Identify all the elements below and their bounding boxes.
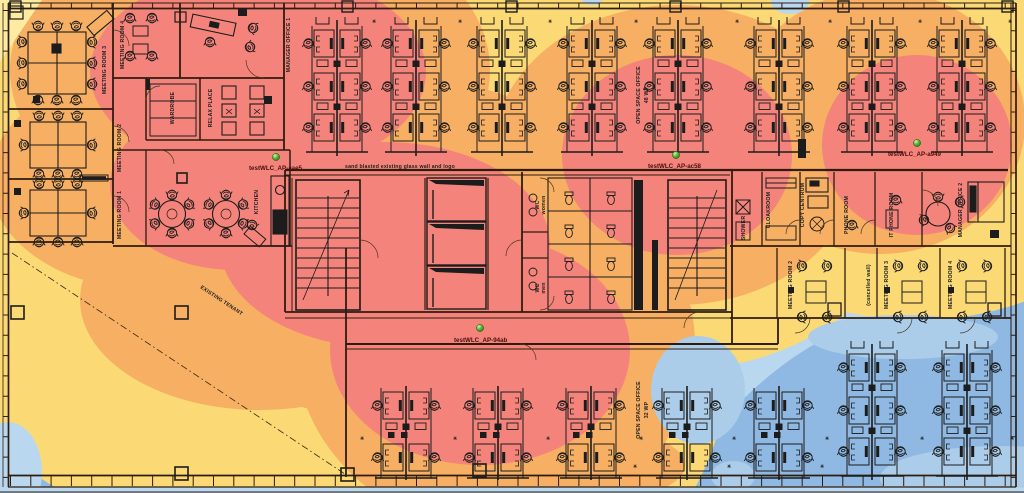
svg-text:men: men	[541, 282, 547, 293]
svg-text:✳: ✳	[820, 464, 825, 470]
svg-text:✳: ✳	[1010, 436, 1015, 442]
svg-text:✳: ✳	[372, 19, 377, 25]
svg-text:MANAGER OFFICE 1: MANAGER OFFICE 1	[286, 18, 292, 73]
svg-text:CLOAKROOM: CLOAKROOM	[766, 192, 772, 228]
svg-text:✳: ✳	[1008, 19, 1013, 25]
svg-text:RELAX PLACE: RELAX PLACE	[208, 88, 214, 127]
svg-text:✳: ✳	[920, 436, 925, 442]
svg-text:✳: ✳	[633, 464, 638, 470]
svg-text:MEETING ROOM 1: MEETING ROOM 1	[117, 191, 123, 239]
svg-text:testWLC_AP-a949: testWLC_AP-a949	[888, 151, 942, 158]
svg-text:✳: ✳	[360, 436, 365, 442]
svg-text:testWLC_AP-94ab: testWLC_AP-94ab	[454, 337, 508, 344]
svg-text:WARDROBE: WARDROBE	[170, 91, 176, 124]
svg-text:SHOWER: SHOWER	[741, 216, 747, 241]
svg-text:COPY CENTRUM: COPY CENTRUM	[800, 183, 806, 227]
svg-text:✳: ✳	[546, 436, 551, 442]
svg-text:MEETING ROOM 3: MEETING ROOM 3	[102, 46, 108, 94]
svg-text:✳: ✳	[735, 19, 740, 25]
svg-text:✳: ✳	[825, 436, 830, 442]
svg-text:✳: ✳	[732, 436, 737, 442]
svg-text:MEETING ROOM 4: MEETING ROOM 4	[948, 261, 954, 309]
svg-text:sand blasted existing glass wa: sand blasted existing glass wall and log…	[345, 164, 455, 170]
svg-text:MEETING ROOM 2: MEETING ROOM 2	[788, 261, 794, 309]
svg-text:48 WP: 48 WP	[644, 86, 650, 103]
svg-text:✳: ✳	[458, 19, 463, 25]
svg-text:32 WP: 32 WP	[644, 401, 650, 418]
svg-text:✳: ✳	[828, 19, 833, 25]
svg-text:✳: ✳	[727, 464, 732, 470]
svg-text:PHONE ROOM: PHONE ROOM	[844, 196, 850, 234]
svg-text:OPEN SPACE OFFICE: OPEN SPACE OFFICE	[636, 381, 642, 439]
svg-text:(cancelled wall): (cancelled wall)	[866, 264, 872, 306]
svg-text:OPEN SPACE OFFICE: OPEN SPACE OFFICE	[636, 66, 642, 124]
svg-text:✳: ✳	[918, 19, 923, 25]
svg-text:✳: ✳	[548, 19, 553, 25]
svg-text:✳: ✳	[634, 19, 639, 25]
svg-text:MEETING ROOM 2: MEETING ROOM 2	[117, 124, 123, 172]
svg-text:testWLC_AP-aae5: testWLC_AP-aae5	[249, 165, 303, 172]
svg-text:testWLC_AP-ac58: testWLC_AP-ac58	[648, 163, 702, 170]
svg-text:KITCHEN: KITCHEN	[254, 190, 260, 215]
svg-text:MEETING ROOM 3: MEETING ROOM 3	[884, 261, 890, 309]
svg-text:MANAGER OFFICE 2: MANAGER OFFICE 2	[958, 183, 964, 238]
svg-text:MEETING ROOM 4: MEETING ROOM 4	[120, 21, 126, 69]
svg-text:✳: ✳	[453, 436, 458, 442]
svg-text:women: women	[541, 196, 547, 216]
svg-text:IT PHONE ROOM: IT PHONE ROOM	[889, 193, 895, 238]
